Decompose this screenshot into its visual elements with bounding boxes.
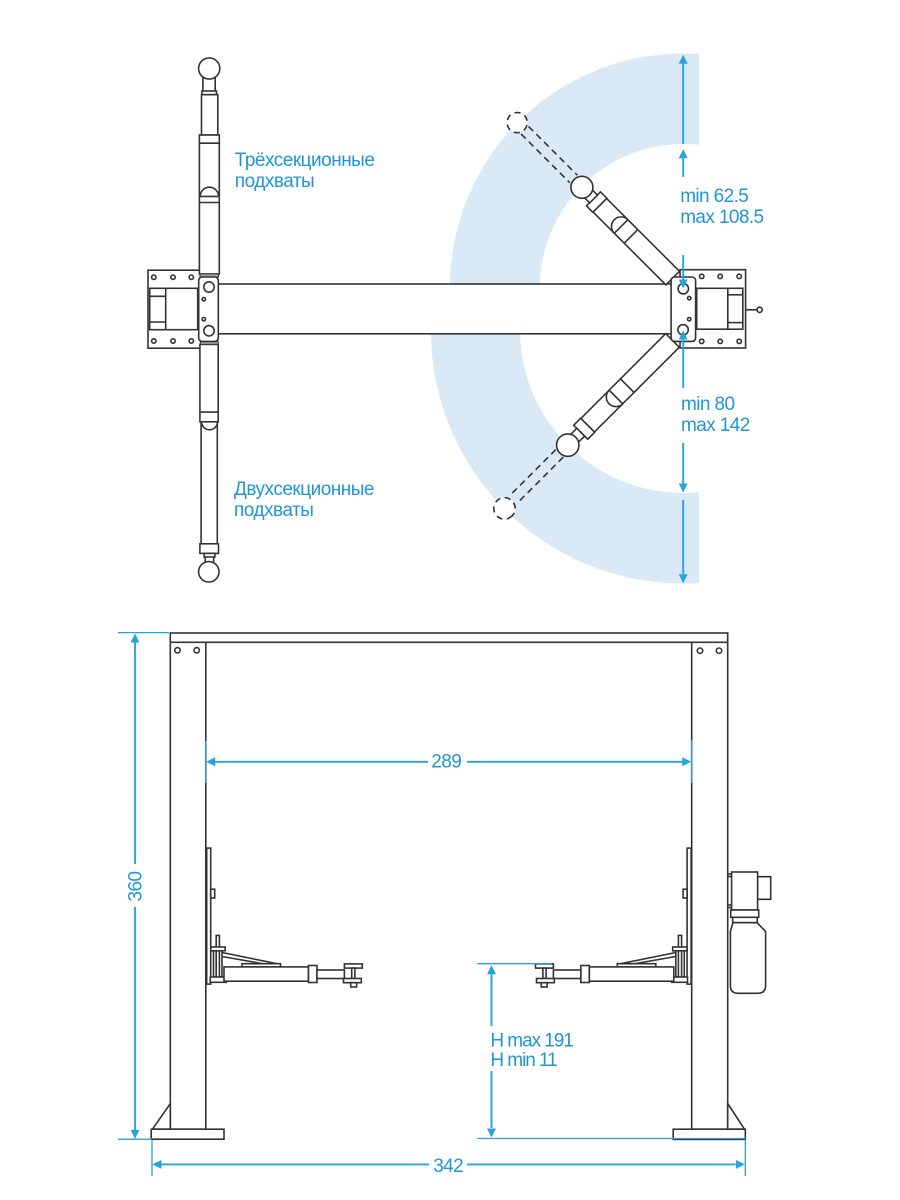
- svg-text:H max 191: H max 191: [490, 1030, 573, 1051]
- svg-text:подхваты: подхваты: [235, 171, 314, 192]
- svg-text:min 62.5: min 62.5: [680, 186, 748, 207]
- svg-text:289: 289: [431, 752, 461, 773]
- svg-text:360: 360: [126, 872, 147, 902]
- svg-text:H min 11: H min 11: [490, 1050, 557, 1071]
- svg-text:max 108.5: max 108.5: [680, 207, 763, 228]
- svg-text:min 80: min 80: [681, 394, 734, 415]
- svg-text:max 142: max 142: [681, 415, 750, 436]
- svg-text:Трёхсекционные: Трёхсекционные: [235, 150, 375, 171]
- svg-text:342: 342: [433, 1156, 463, 1177]
- svg-text:Двухсекционные: Двухсекционные: [234, 479, 374, 500]
- svg-text:подхваты: подхваты: [234, 500, 313, 521]
